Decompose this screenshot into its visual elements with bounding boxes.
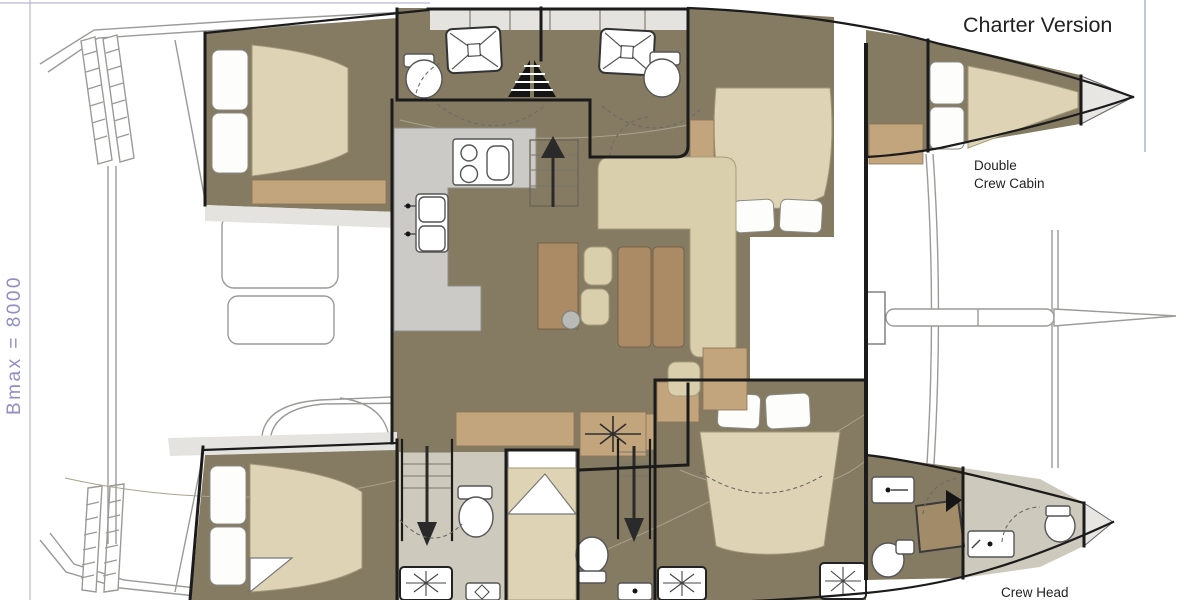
toilet-icon	[644, 52, 680, 97]
sink-icon	[618, 583, 652, 600]
floor-plan-canvas: Charter Version Bmax = 8000 Double Crew …	[0, 0, 1200, 600]
page-title: Charter Version	[963, 13, 1112, 37]
crew-head-label: Crew Head	[1001, 585, 1069, 600]
toilet-icon	[1045, 506, 1075, 542]
double-crew-cabin-label: Crew Cabin	[974, 176, 1045, 191]
stool	[562, 311, 580, 329]
beam-dimension-label: Bmax = 8000	[4, 275, 25, 415]
catamaran-floor-plan: Charter Version Bmax = 8000 Double Crew …	[0, 0, 1200, 600]
sink-icon	[872, 477, 914, 503]
toilet-icon	[576, 537, 608, 583]
bowsprit	[886, 309, 1054, 326]
transom-steps-starboard	[81, 484, 124, 592]
mid-berth	[508, 450, 576, 600]
cockpit-bench	[228, 296, 334, 344]
hatch-star-icon	[400, 567, 452, 600]
sink-icon	[968, 531, 1014, 557]
chair	[581, 289, 609, 325]
sink-icon	[466, 583, 500, 600]
double-crew-cabin-label: Double	[974, 158, 1017, 173]
shower-pan-icon	[446, 27, 502, 74]
toilet-icon	[458, 486, 493, 537]
dinette-table-leaf	[618, 247, 651, 347]
shower-pan-icon	[916, 500, 964, 552]
chair	[584, 247, 612, 285]
stbd-aft-bed	[210, 464, 362, 592]
bowsprit-pole	[1054, 309, 1176, 326]
dinette-table-leaf	[653, 247, 684, 347]
transom-steps-port	[81, 35, 134, 164]
hatch-star-icon	[658, 567, 706, 600]
hatch-cross-icon	[580, 412, 646, 456]
